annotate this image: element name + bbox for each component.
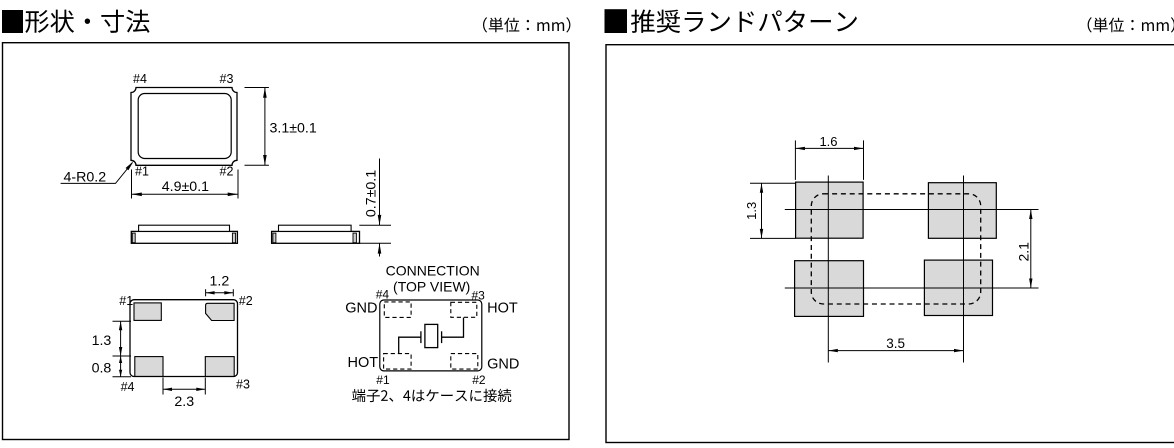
svg-text:CONNECTION: CONNECTION bbox=[386, 263, 480, 279]
svg-text:3.5: 3.5 bbox=[886, 336, 905, 351]
svg-text:#3: #3 bbox=[236, 378, 250, 392]
svg-text:HOT: HOT bbox=[487, 301, 518, 317]
svg-text:0.8: 0.8 bbox=[92, 360, 112, 376]
svg-text:1.6: 1.6 bbox=[819, 134, 837, 149]
svg-text:3.1±0.1: 3.1±0.1 bbox=[270, 121, 317, 137]
svg-text:2.3: 2.3 bbox=[174, 394, 194, 410]
svg-text:#2: #2 bbox=[239, 294, 253, 308]
svg-text:1.3: 1.3 bbox=[744, 202, 759, 220]
svg-text:HOT: HOT bbox=[347, 355, 378, 371]
svg-text:2.1: 2.1 bbox=[1015, 242, 1031, 262]
svg-text:#2: #2 bbox=[220, 165, 234, 179]
svg-text:#4: #4 bbox=[133, 72, 147, 86]
svg-text:#1: #1 bbox=[376, 373, 390, 387]
svg-text:GND: GND bbox=[345, 301, 377, 317]
svg-text:4.9±0.1: 4.9±0.1 bbox=[162, 179, 209, 195]
svg-text:#3: #3 bbox=[220, 72, 234, 86]
svg-text:GND: GND bbox=[487, 357, 519, 373]
svg-text:(TOP VIEW): (TOP VIEW) bbox=[393, 278, 470, 294]
svg-text:#4: #4 bbox=[121, 380, 135, 394]
svg-text:#1: #1 bbox=[135, 165, 149, 179]
svg-text:1.2: 1.2 bbox=[210, 273, 230, 289]
svg-text:#4: #4 bbox=[376, 287, 390, 301]
svg-text:0.7±0.1: 0.7±0.1 bbox=[364, 170, 380, 217]
svg-text:#2: #2 bbox=[472, 373, 486, 387]
svg-text:#3: #3 bbox=[472, 288, 486, 302]
svg-text:#1: #1 bbox=[119, 294, 133, 308]
svg-text:1.3: 1.3 bbox=[92, 333, 112, 349]
